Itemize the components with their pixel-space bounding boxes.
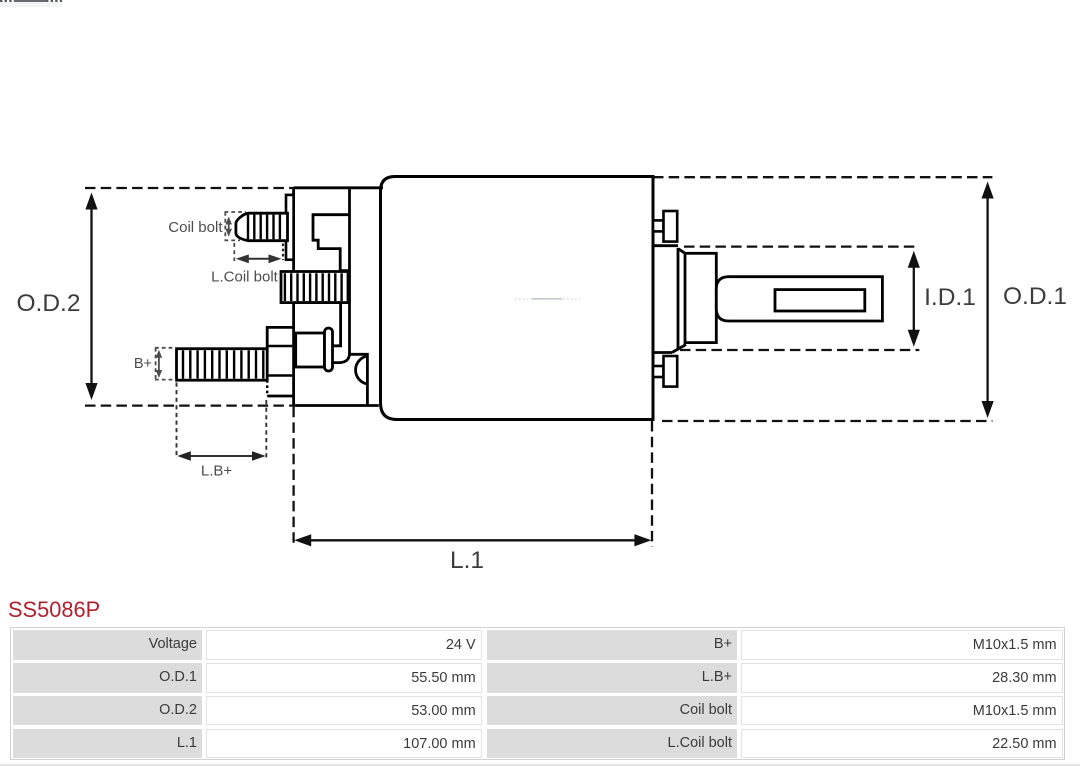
svg-text:B+: B+ [134,356,152,372]
svg-text:L.Coil bolt: L.Coil bolt [211,269,279,286]
svg-text:L.B+: L.B+ [201,463,233,480]
svg-text:L.1: L.1 [450,547,484,574]
svg-text:I.D.1: I.D.1 [924,284,976,311]
svg-text:Coil bolt: Coil bolt [168,219,223,236]
svg-text:O.D.1: O.D.1 [1003,283,1067,310]
svg-text:O.D.2: O.D.2 [17,290,81,317]
